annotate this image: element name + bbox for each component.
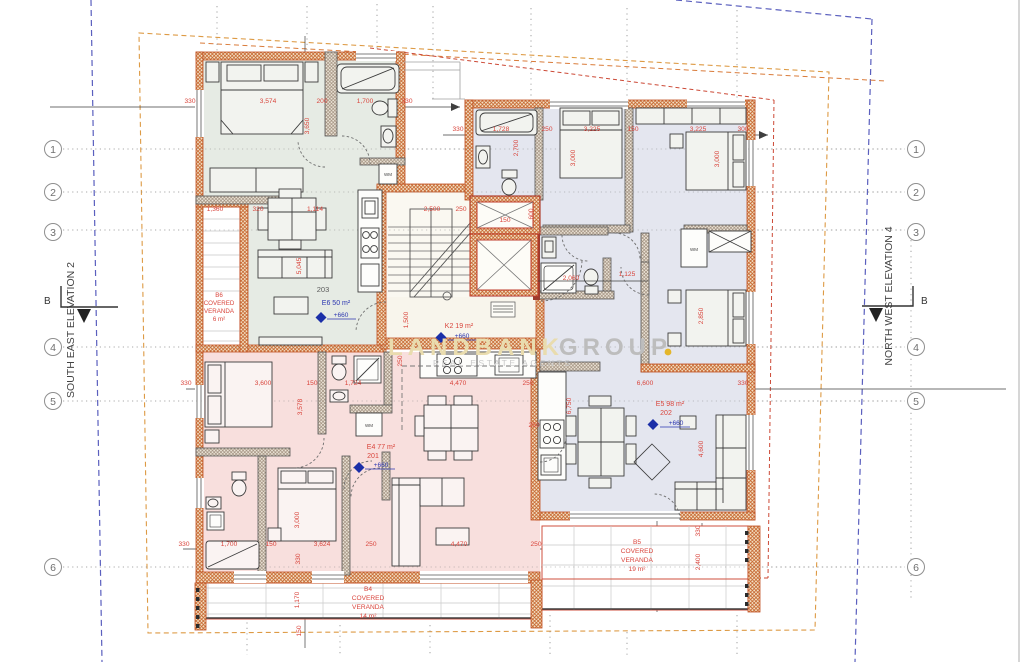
svg-text:VERANDA: VERANDA xyxy=(204,308,235,315)
svg-text:1,728: 1,728 xyxy=(493,126,510,133)
svg-text:3,000: 3,000 xyxy=(714,150,721,167)
svg-text:5: 5 xyxy=(50,396,56,408)
svg-text:19 m²: 19 m² xyxy=(629,566,647,573)
svg-text:B6: B6 xyxy=(215,292,223,299)
svg-text:150: 150 xyxy=(627,126,638,133)
svg-text:200: 200 xyxy=(316,98,327,105)
svg-text:3,650: 3,650 xyxy=(304,117,311,134)
svg-text:250: 250 xyxy=(455,206,466,213)
svg-text:NORTH WEST ELEVATION 4: NORTH WEST ELEVATION 4 xyxy=(883,226,895,365)
svg-text:6,750: 6,750 xyxy=(566,397,573,414)
svg-text:COVERED: COVERED xyxy=(621,548,654,555)
svg-text:3,000: 3,000 xyxy=(294,511,301,528)
svg-text:SOUTH EAST ELEVATION 2: SOUTH EAST ELEVATION 2 xyxy=(65,262,77,398)
svg-text:2,500: 2,500 xyxy=(424,206,441,213)
svg-text:330: 330 xyxy=(295,553,302,564)
svg-text:REAL ESTATE AGENTS: REAL ESTATE AGENTS xyxy=(433,358,573,368)
svg-text:3,574: 3,574 xyxy=(260,98,277,105)
svg-text:2,400: 2,400 xyxy=(695,553,702,570)
svg-text:320: 320 xyxy=(252,206,263,213)
svg-text:3,624: 3,624 xyxy=(314,541,331,548)
svg-text:6: 6 xyxy=(50,562,56,574)
svg-text:330: 330 xyxy=(184,98,195,105)
svg-text:330: 330 xyxy=(452,126,463,133)
svg-text:330: 330 xyxy=(180,380,191,387)
svg-text:203: 203 xyxy=(317,285,330,294)
svg-text:150: 150 xyxy=(265,541,276,548)
svg-text:1,500: 1,500 xyxy=(403,311,410,328)
svg-text:5: 5 xyxy=(913,396,919,408)
svg-text:B: B xyxy=(921,296,928,307)
svg-text:B: B xyxy=(44,296,51,307)
svg-text:4: 4 xyxy=(913,342,919,354)
svg-text:6,600: 6,600 xyxy=(637,380,654,387)
svg-text:3,225: 3,225 xyxy=(584,126,601,133)
svg-text:4,470: 4,470 xyxy=(451,541,468,548)
svg-text:150: 150 xyxy=(306,380,317,387)
svg-text:2: 2 xyxy=(913,187,919,199)
svg-text:+660: +660 xyxy=(669,420,684,427)
svg-text:330: 330 xyxy=(401,98,412,105)
svg-text:4,600: 4,600 xyxy=(698,440,705,457)
svg-text:3: 3 xyxy=(50,227,56,239)
svg-text:5,045: 5,045 xyxy=(296,257,303,274)
svg-text:150: 150 xyxy=(296,625,303,636)
svg-text:1,360: 1,360 xyxy=(207,206,224,213)
svg-text:201: 201 xyxy=(367,453,379,460)
svg-text:330: 330 xyxy=(695,525,702,536)
svg-text:B5: B5 xyxy=(633,539,641,546)
svg-text:6: 6 xyxy=(913,562,919,574)
svg-text:300: 300 xyxy=(737,126,748,133)
svg-text:VERANDA: VERANDA xyxy=(621,557,653,564)
svg-text:+660: +660 xyxy=(374,462,389,469)
svg-text:3,000: 3,000 xyxy=(570,149,577,166)
svg-text:2,700: 2,700 xyxy=(513,139,520,156)
svg-text:1,125: 1,125 xyxy=(619,271,636,278)
svg-text:E6 50 m²: E6 50 m² xyxy=(322,300,351,307)
svg-text:E4 77 m²: E4 77 m² xyxy=(367,444,396,451)
svg-text:K2 19 m²: K2 19 m² xyxy=(445,323,474,330)
svg-text:LANDBANK: LANDBANK xyxy=(388,334,564,361)
svg-text:14 m²: 14 m² xyxy=(360,613,378,620)
svg-text:6 m²: 6 m² xyxy=(213,316,225,323)
svg-text:3,225: 3,225 xyxy=(690,126,707,133)
svg-text:1,114: 1,114 xyxy=(307,206,323,213)
svg-text:2,850: 2,850 xyxy=(698,307,705,324)
svg-text:E5 98 m²: E5 98 m² xyxy=(656,401,685,408)
svg-text:GROUP: GROUP xyxy=(559,334,672,361)
svg-text:WM: WM xyxy=(365,423,373,428)
svg-text:VERANDA: VERANDA xyxy=(352,604,384,611)
svg-text:4: 4 xyxy=(50,342,56,354)
svg-text:1: 1 xyxy=(913,144,919,156)
svg-text:1,700: 1,700 xyxy=(221,541,238,548)
svg-text:202: 202 xyxy=(660,410,672,417)
svg-text:2: 2 xyxy=(50,187,56,199)
svg-text:250: 250 xyxy=(528,422,539,429)
svg-text:150: 150 xyxy=(499,217,510,224)
svg-text:+660: +660 xyxy=(334,312,349,319)
svg-text:250: 250 xyxy=(530,541,541,548)
svg-text:250: 250 xyxy=(365,541,376,548)
svg-text:3,600: 3,600 xyxy=(255,380,272,387)
svg-text:600: 600 xyxy=(528,208,535,219)
svg-text:1,724: 1,724 xyxy=(345,380,362,387)
svg-text:1,170: 1,170 xyxy=(294,591,301,608)
svg-text:1,700: 1,700 xyxy=(357,98,374,105)
svg-text:330: 330 xyxy=(178,541,189,548)
svg-text:COVERED: COVERED xyxy=(352,595,385,602)
svg-text:3: 3 xyxy=(913,227,919,239)
svg-text:250: 250 xyxy=(522,380,533,387)
svg-text:B4: B4 xyxy=(364,586,372,593)
svg-text:WM: WM xyxy=(384,172,392,177)
svg-text:2,060: 2,060 xyxy=(563,275,580,282)
svg-text:1: 1 xyxy=(50,144,56,156)
svg-text:COVERED: COVERED xyxy=(204,300,235,307)
svg-text:WM: WM xyxy=(690,247,698,252)
svg-text:3,578: 3,578 xyxy=(297,398,304,415)
svg-text:4,470: 4,470 xyxy=(450,380,467,387)
svg-text:250: 250 xyxy=(541,126,552,133)
svg-text:330: 330 xyxy=(737,380,748,387)
